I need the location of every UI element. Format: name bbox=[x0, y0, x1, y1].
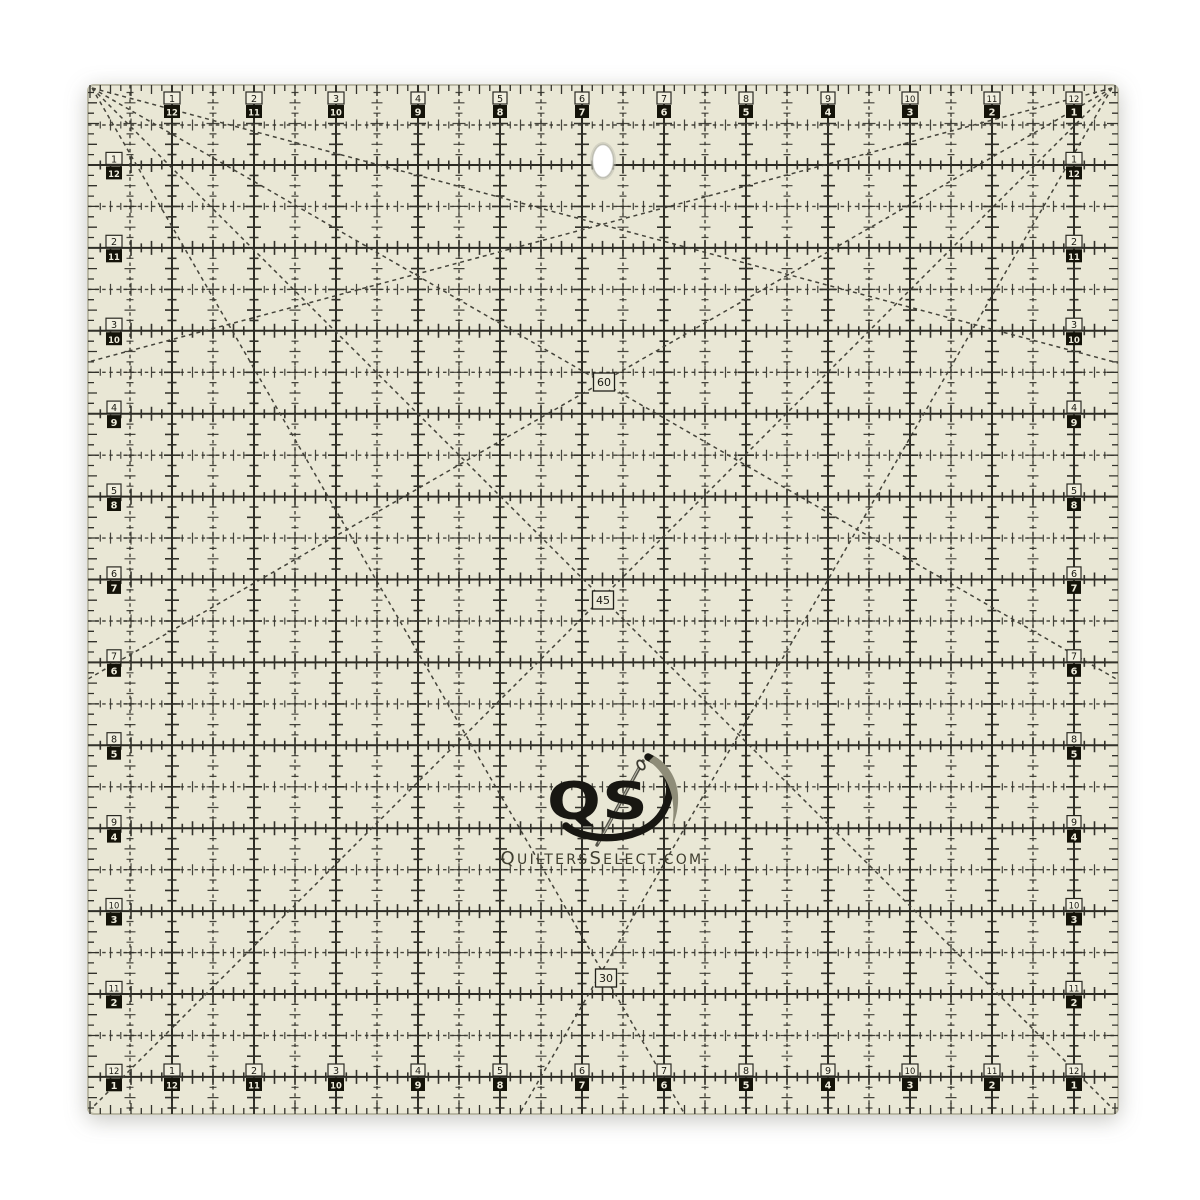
number-reverse: 8 bbox=[1071, 501, 1078, 512]
number-reverse: 12 bbox=[166, 1081, 178, 1091]
number-forward: 7 bbox=[1071, 652, 1077, 663]
number-forward: 5 bbox=[497, 1066, 503, 1077]
number-reverse: 4 bbox=[1071, 832, 1078, 843]
number-reverse: 9 bbox=[111, 418, 118, 429]
product-photo-stage: 1121121121122112112112113103103103104949… bbox=[0, 0, 1200, 1200]
inch-label-pair: 76 bbox=[657, 92, 671, 119]
number-reverse: 9 bbox=[415, 108, 422, 119]
number-forward: 8 bbox=[743, 94, 749, 105]
number-reverse: 3 bbox=[907, 108, 914, 119]
angle-marker-60: 60 bbox=[594, 373, 615, 391]
number-forward: 9 bbox=[111, 818, 117, 829]
number-forward: 4 bbox=[111, 403, 117, 414]
number-reverse: 5 bbox=[111, 749, 118, 760]
number-reverse: 4 bbox=[111, 832, 118, 843]
number-forward: 10 bbox=[905, 1066, 916, 1076]
number-forward: 10 bbox=[905, 94, 916, 104]
number-forward: 10 bbox=[1069, 900, 1080, 910]
number-forward: 4 bbox=[415, 94, 421, 105]
number-reverse: 1 bbox=[1071, 1081, 1078, 1092]
number-forward: 8 bbox=[111, 735, 117, 746]
inch-label-pair: 85 bbox=[739, 92, 753, 119]
number-reverse: 1 bbox=[1071, 108, 1078, 119]
hang-hole-opening bbox=[593, 145, 614, 178]
number-forward: 3 bbox=[333, 94, 339, 105]
number-reverse: 3 bbox=[1071, 915, 1078, 926]
number-forward: 6 bbox=[1071, 569, 1077, 580]
inch-label-pair: 67 bbox=[575, 92, 589, 119]
angle-marker-label: 60 bbox=[597, 376, 611, 389]
number-forward: 3 bbox=[111, 320, 117, 331]
number-reverse: 10 bbox=[1068, 335, 1080, 345]
number-forward: 11 bbox=[1069, 983, 1080, 993]
number-forward: 1 bbox=[169, 94, 175, 105]
number-reverse: 7 bbox=[1071, 584, 1078, 595]
number-reverse: 8 bbox=[497, 1081, 504, 1092]
inch-label-pair: 211 bbox=[246, 92, 262, 118]
inch-label-pair: 103 bbox=[902, 92, 918, 119]
inch-label-pair: 310 bbox=[328, 92, 344, 118]
number-reverse: 5 bbox=[1071, 749, 1078, 760]
number-reverse: 5 bbox=[743, 108, 750, 119]
number-forward: 3 bbox=[333, 1066, 339, 1077]
number-forward: 9 bbox=[825, 94, 831, 105]
inch-label-pair: 58 bbox=[493, 92, 507, 119]
number-reverse: 9 bbox=[415, 1081, 422, 1092]
number-forward: 7 bbox=[661, 1066, 667, 1077]
number-reverse: 2 bbox=[111, 998, 118, 1009]
number-forward: 4 bbox=[1071, 403, 1077, 414]
number-reverse: 3 bbox=[111, 915, 118, 926]
number-forward: 2 bbox=[251, 1066, 257, 1077]
number-reverse: 4 bbox=[825, 1081, 832, 1092]
number-forward: 2 bbox=[111, 237, 117, 248]
number-forward: 7 bbox=[661, 94, 667, 105]
angle-marker-30: 30 bbox=[596, 969, 617, 987]
number-forward: 9 bbox=[1071, 818, 1077, 829]
number-reverse: 1 bbox=[111, 1081, 118, 1092]
number-reverse: 2 bbox=[1071, 998, 1078, 1009]
angle-marker-label: 30 bbox=[599, 972, 613, 985]
number-reverse: 6 bbox=[661, 108, 668, 119]
number-reverse: 3 bbox=[907, 1081, 914, 1092]
number-forward: 1 bbox=[169, 1066, 175, 1077]
number-reverse: 2 bbox=[989, 108, 996, 119]
number-reverse: 11 bbox=[248, 108, 260, 118]
number-forward: 3 bbox=[1071, 320, 1077, 331]
inch-label-pair: 121 bbox=[1066, 92, 1082, 119]
inch-label-pair: 112 bbox=[984, 92, 1000, 119]
quilters-select-ruler: 1121121121122112112112113103103103104949… bbox=[0, 0, 1200, 1200]
number-reverse: 8 bbox=[497, 108, 504, 119]
number-forward: 5 bbox=[1071, 486, 1077, 497]
inch-label-pair: 49 bbox=[411, 92, 425, 119]
number-reverse: 5 bbox=[743, 1081, 750, 1092]
number-reverse: 12 bbox=[108, 169, 120, 179]
inch-label-pair: 112 bbox=[164, 92, 180, 118]
number-forward: 8 bbox=[1071, 735, 1077, 746]
number-reverse: 10 bbox=[108, 335, 120, 345]
number-forward: 1 bbox=[111, 154, 117, 165]
number-forward: 5 bbox=[111, 486, 117, 497]
number-forward: 2 bbox=[1071, 237, 1077, 248]
number-forward: 1 bbox=[1071, 154, 1077, 165]
number-reverse: 6 bbox=[661, 1081, 668, 1092]
number-forward: 2 bbox=[251, 94, 257, 105]
angle-marker-45: 45 bbox=[593, 591, 614, 609]
number-forward: 12 bbox=[1069, 1066, 1080, 1076]
number-reverse: 6 bbox=[111, 667, 118, 678]
website-text: QUILTERSSELECT.COM bbox=[501, 848, 704, 869]
number-reverse: 11 bbox=[248, 1081, 260, 1091]
hang-hole bbox=[590, 142, 616, 180]
number-forward: 11 bbox=[109, 983, 120, 993]
number-forward: 8 bbox=[743, 1066, 749, 1077]
number-reverse: 8 bbox=[111, 501, 118, 512]
angle-marker-label: 45 bbox=[596, 594, 610, 607]
number-reverse: 6 bbox=[1071, 667, 1078, 678]
number-forward: 12 bbox=[109, 1066, 120, 1076]
number-forward: 11 bbox=[987, 94, 998, 104]
number-reverse: 7 bbox=[111, 584, 118, 595]
number-forward: 6 bbox=[579, 94, 585, 105]
number-forward: 9 bbox=[825, 1066, 831, 1077]
number-reverse: 10 bbox=[330, 108, 342, 118]
number-reverse: 7 bbox=[579, 1081, 586, 1092]
number-reverse: 12 bbox=[166, 108, 178, 118]
number-reverse: 9 bbox=[1071, 418, 1078, 429]
number-forward: 11 bbox=[987, 1066, 998, 1076]
number-reverse: 4 bbox=[825, 108, 832, 119]
number-forward: 5 bbox=[497, 94, 503, 105]
number-reverse: 2 bbox=[989, 1081, 996, 1092]
number-reverse: 10 bbox=[330, 1081, 342, 1091]
number-forward: 10 bbox=[109, 900, 120, 910]
number-reverse: 7 bbox=[579, 108, 586, 119]
number-forward: 6 bbox=[111, 569, 117, 580]
number-forward: 12 bbox=[1069, 94, 1080, 104]
number-forward: 7 bbox=[111, 652, 117, 663]
number-reverse: 11 bbox=[1068, 252, 1080, 262]
number-forward: 6 bbox=[579, 1066, 585, 1077]
logo-monogram: QS bbox=[547, 771, 649, 832]
number-reverse: 12 bbox=[1068, 169, 1080, 179]
number-reverse: 11 bbox=[108, 252, 120, 262]
inch-label-pair: 94 bbox=[821, 92, 835, 119]
number-forward: 4 bbox=[415, 1066, 421, 1077]
